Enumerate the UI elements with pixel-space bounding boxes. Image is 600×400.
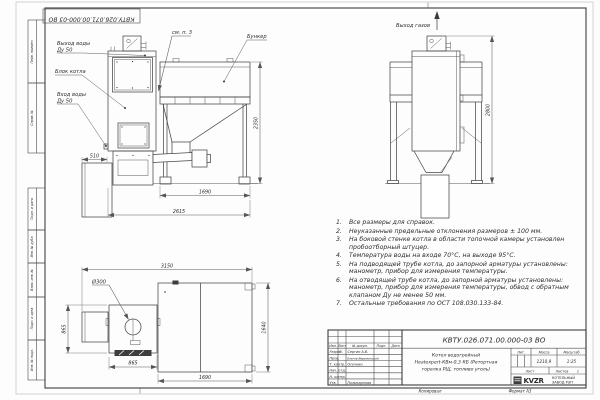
note-text: На отводящей трубе котла, до запорной ар… (349, 277, 584, 300)
note-number: 7. (336, 300, 345, 308)
company-name-line1: КОТЕЛЬНЫЙ (552, 375, 575, 380)
note-text: Все размеры для справок. (349, 219, 584, 227)
note-item: 4.Температура воды на входе 70°С, на вых… (336, 252, 584, 260)
front-dimensions: 510 2350 1690 2615 (82, 62, 263, 218)
margin-label-5: Подп. и дата (30, 308, 34, 330)
row-name-1: Онегов-Вережинский (347, 356, 379, 360)
label-water-inlet-line2: Ду 50 (56, 99, 73, 105)
scale-label: Масштаб (563, 350, 579, 354)
product-name-line1: Котел водогрейный (432, 353, 480, 359)
footer-format: Формат А3 (509, 389, 532, 394)
note-text: Неуказанные предельные отклонения размер… (349, 228, 584, 236)
margin-label-6: Инв. № подл. (30, 349, 34, 371)
side-view: Выход газов (385, 11, 495, 218)
row-role-0: Разраб. (330, 350, 343, 354)
sheets-value: 1 (577, 369, 579, 373)
dim-1690-front: 1690 (199, 190, 211, 196)
front-ash-box (82, 163, 112, 217)
dim-3150: 3150 (161, 264, 173, 270)
dim-1640: 1640 (262, 321, 268, 333)
side-chimney (427, 36, 446, 51)
note-item: 7.Остальные требования по ОСТ 108.030.13… (336, 300, 584, 308)
side-boiler-body (412, 51, 460, 151)
front-auger-motor (192, 150, 207, 167)
front-labels: Выход воды Ду 50 Блок котла Вход воды Ду… (55, 30, 267, 147)
col-list: Лист (337, 344, 346, 348)
front-view: Выход воды Ду 50 Блок котла Вход воды Ду… (55, 30, 267, 218)
note-item: 1.Все размеры для справок. (336, 219, 584, 227)
dim-2800: 2800 (486, 104, 492, 116)
note-text: На боковой стенке котла в области топочн… (349, 236, 584, 251)
col-izm: Изм. (329, 344, 337, 348)
mass-value: 1210,9 (537, 359, 552, 364)
front-auger-tube (153, 153, 192, 163)
side-dimensions: 2800 (447, 36, 495, 184)
notes-section: 1.Все размеры для справок. 2.Неуказанные… (336, 219, 584, 309)
product-name-line3: горелка РЩ, топливо уголь) (422, 367, 491, 373)
dim-865-left: 865 (62, 324, 68, 333)
row-name-0: Сергин А.В. (348, 350, 369, 354)
margin-label-0: Перв. примен. (30, 40, 34, 64)
label-flue-diameter: Ø300 (91, 279, 107, 286)
label-water-outlet-line2: Ду 50 (56, 48, 73, 54)
note-text: Остальные требования по ОСТ 108.030.133-… (349, 300, 584, 308)
note-number: 5. (336, 261, 345, 276)
row-role-2: Т. контр. (330, 363, 346, 367)
dim-2615: 2615 (173, 209, 185, 215)
kvzr-logo-icon (514, 377, 522, 385)
titleblock-doc-number: КВТУ.026.071.00.000-03 ВО (443, 336, 546, 345)
scale-value: 1:25 (567, 359, 577, 364)
dim-2350: 2350 (254, 117, 260, 129)
label-bunker: Бункер (247, 34, 267, 40)
label-gas-outlet: Выход газов (396, 23, 430, 29)
front-stoker (113, 151, 153, 185)
sheet-label: Лист (525, 369, 536, 373)
note-number: 1. (336, 219, 345, 227)
footer-copied: Копировал (419, 389, 442, 394)
product-name-line2: Heatexpert-КВм-0,3 КБ (Ретортная (415, 360, 498, 366)
plan-bunker (158, 283, 252, 372)
label-water-outlet-line1: Выход воды (57, 41, 90, 47)
side-ash-bin (421, 175, 449, 218)
margin-label-4: Взам. инв. № (30, 269, 34, 291)
kvzr-logo-text: KVZR (524, 377, 545, 385)
margin-label-3: Инв. № дубл. (30, 236, 34, 258)
note-item: 5.На подводящей трубе котла, до запорной… (336, 261, 584, 276)
plan-ash-box (82, 312, 108, 342)
label-boiler-block: Блок котла (55, 69, 86, 75)
stamp-text: КВТУ.026.071.00.000-03 ВО (48, 16, 134, 23)
dim-1690-plan: 1690 (199, 375, 211, 381)
label-water-inlet-line1: Вход воды (57, 92, 86, 98)
margin-label-2: Подп. и дата (30, 198, 34, 220)
note-item: 6.На отводящей трубе котла, до запорной … (336, 277, 584, 300)
margin-label-1: Справ. № (30, 110, 34, 126)
sheets-label: Листов (555, 369, 569, 373)
dim-510: 510 (90, 154, 99, 160)
col-doc: № докум. (351, 344, 368, 348)
title-block: КВТУ.026.071.00.000-03 ВО Котел водогрей… (328, 330, 586, 385)
col-sign: Подп. (377, 344, 387, 348)
note-text: Температура воды на входе 70°С, на выход… (349, 252, 584, 260)
note-text: На подводящей трубе котла, до запорной а… (349, 261, 584, 276)
note-number: 6. (336, 277, 345, 300)
mass-label: Масса (539, 350, 550, 354)
note-number: 4. (336, 252, 345, 260)
row-role-3: Нач. отд. (330, 369, 346, 373)
lit-label: Лит. (516, 350, 525, 354)
row-role-4: Н. контр. (330, 375, 346, 379)
row-role-1: Пров. (330, 356, 340, 360)
drawing-canvas: Перв. примен. Справ. № Подп. и дата Инв.… (0, 0, 600, 400)
margin-column-boxes: Перв. примен. Справ. № Подп. и дата Инв.… (28, 20, 45, 380)
note-number: 2. (336, 228, 345, 236)
note-number: 3. (336, 236, 345, 251)
company-logo: KVZR КОТЕЛЬНЫЙ ЗАВОД РЭП (514, 375, 576, 385)
label-see-note: см. п. 3 (172, 30, 192, 36)
row-name-5: Поликарпова (348, 381, 372, 385)
drawing-sheet: Перв. примен. Справ. № Подп. и дата Инв.… (0, 0, 600, 400)
row-role-5: Утв. (330, 381, 337, 385)
row-name-2: Осечкин (348, 363, 364, 367)
plan-view: Ø300 3150 865 865 1690 1640 (62, 264, 271, 384)
dim-865-bottom: 865 (128, 361, 137, 367)
col-date: Дата (390, 344, 399, 348)
note-item: 3.На боковой стенке котла в области топо… (336, 236, 584, 251)
note-item: 2.Неуказанные предельные отклонения разм… (336, 228, 584, 236)
company-name-line2: ЗАВОД РЭП (552, 381, 573, 385)
